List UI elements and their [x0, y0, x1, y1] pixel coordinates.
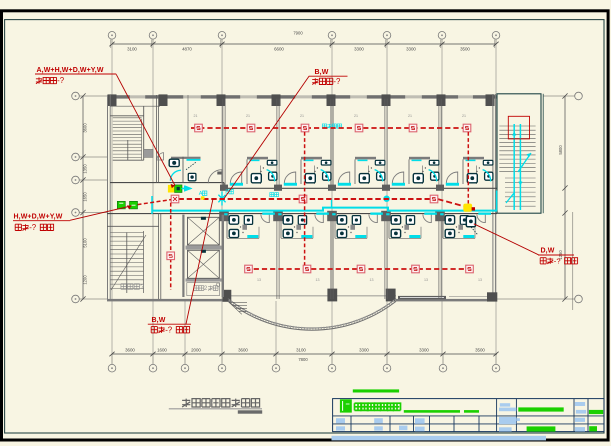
svg-text:-?: -?: [333, 77, 341, 86]
svg-text:3500: 3500: [460, 47, 470, 52]
svg-text:3300: 3300: [419, 348, 429, 353]
svg-text:21: 21: [246, 114, 250, 118]
svg-text:13: 13: [316, 278, 320, 282]
svg-text:21: 21: [194, 114, 198, 118]
svg-text:5100: 5100: [83, 238, 88, 248]
svg-text:3300: 3300: [359, 348, 369, 353]
svg-text:3100: 3100: [127, 47, 137, 52]
svg-text:13: 13: [370, 278, 374, 282]
svg-text:3600: 3600: [125, 348, 135, 353]
svg-text:?: ?: [140, 284, 144, 291]
svg-text:13: 13: [257, 278, 261, 282]
svg-text:21: 21: [462, 114, 466, 118]
svg-text:3500: 3500: [475, 348, 485, 353]
svg-text:1350: 1350: [83, 164, 88, 174]
svg-text:A,W+H,W+D,W+Y,W: A,W+H,W+D,W+Y,W: [37, 67, 104, 74]
svg-text:1200: 1200: [83, 275, 88, 285]
svg-text:-?: -?: [554, 256, 561, 265]
svg-text:B,W: B,W: [315, 69, 329, 76]
svg-text:1650: 1650: [83, 192, 88, 202]
svg-text:7800: 7800: [298, 357, 308, 362]
svg-text:6600: 6600: [274, 47, 284, 52]
svg-text:H,W+D,W+Y,W: H,W+D,W+Y,W: [14, 214, 63, 221]
svg-text:21: 21: [354, 114, 358, 118]
svg-text:3600: 3600: [238, 348, 248, 353]
svg-text:2000: 2000: [191, 348, 201, 353]
svg-text:7900: 7900: [293, 30, 303, 35]
svg-text:21: 21: [300, 114, 304, 118]
svg-text:-?: -?: [29, 223, 37, 232]
svg-text:D,W: D,W: [541, 248, 555, 255]
svg-text:-?: -?: [165, 325, 173, 334]
svg-text:3300: 3300: [354, 47, 364, 52]
svg-text:1600: 1600: [157, 348, 167, 353]
svg-text:13: 13: [478, 278, 482, 282]
svg-text:5800: 5800: [558, 145, 563, 155]
svg-text:3300: 3300: [406, 47, 416, 52]
svg-text:3600: 3600: [83, 123, 88, 133]
svg-text:3100: 3100: [296, 348, 306, 353]
svg-text:21: 21: [408, 114, 412, 118]
svg-text:B,W: B,W: [152, 317, 166, 324]
svg-text:-?: -?: [57, 76, 65, 85]
svg-text:4870: 4870: [182, 47, 192, 52]
svg-text:13: 13: [424, 278, 428, 282]
